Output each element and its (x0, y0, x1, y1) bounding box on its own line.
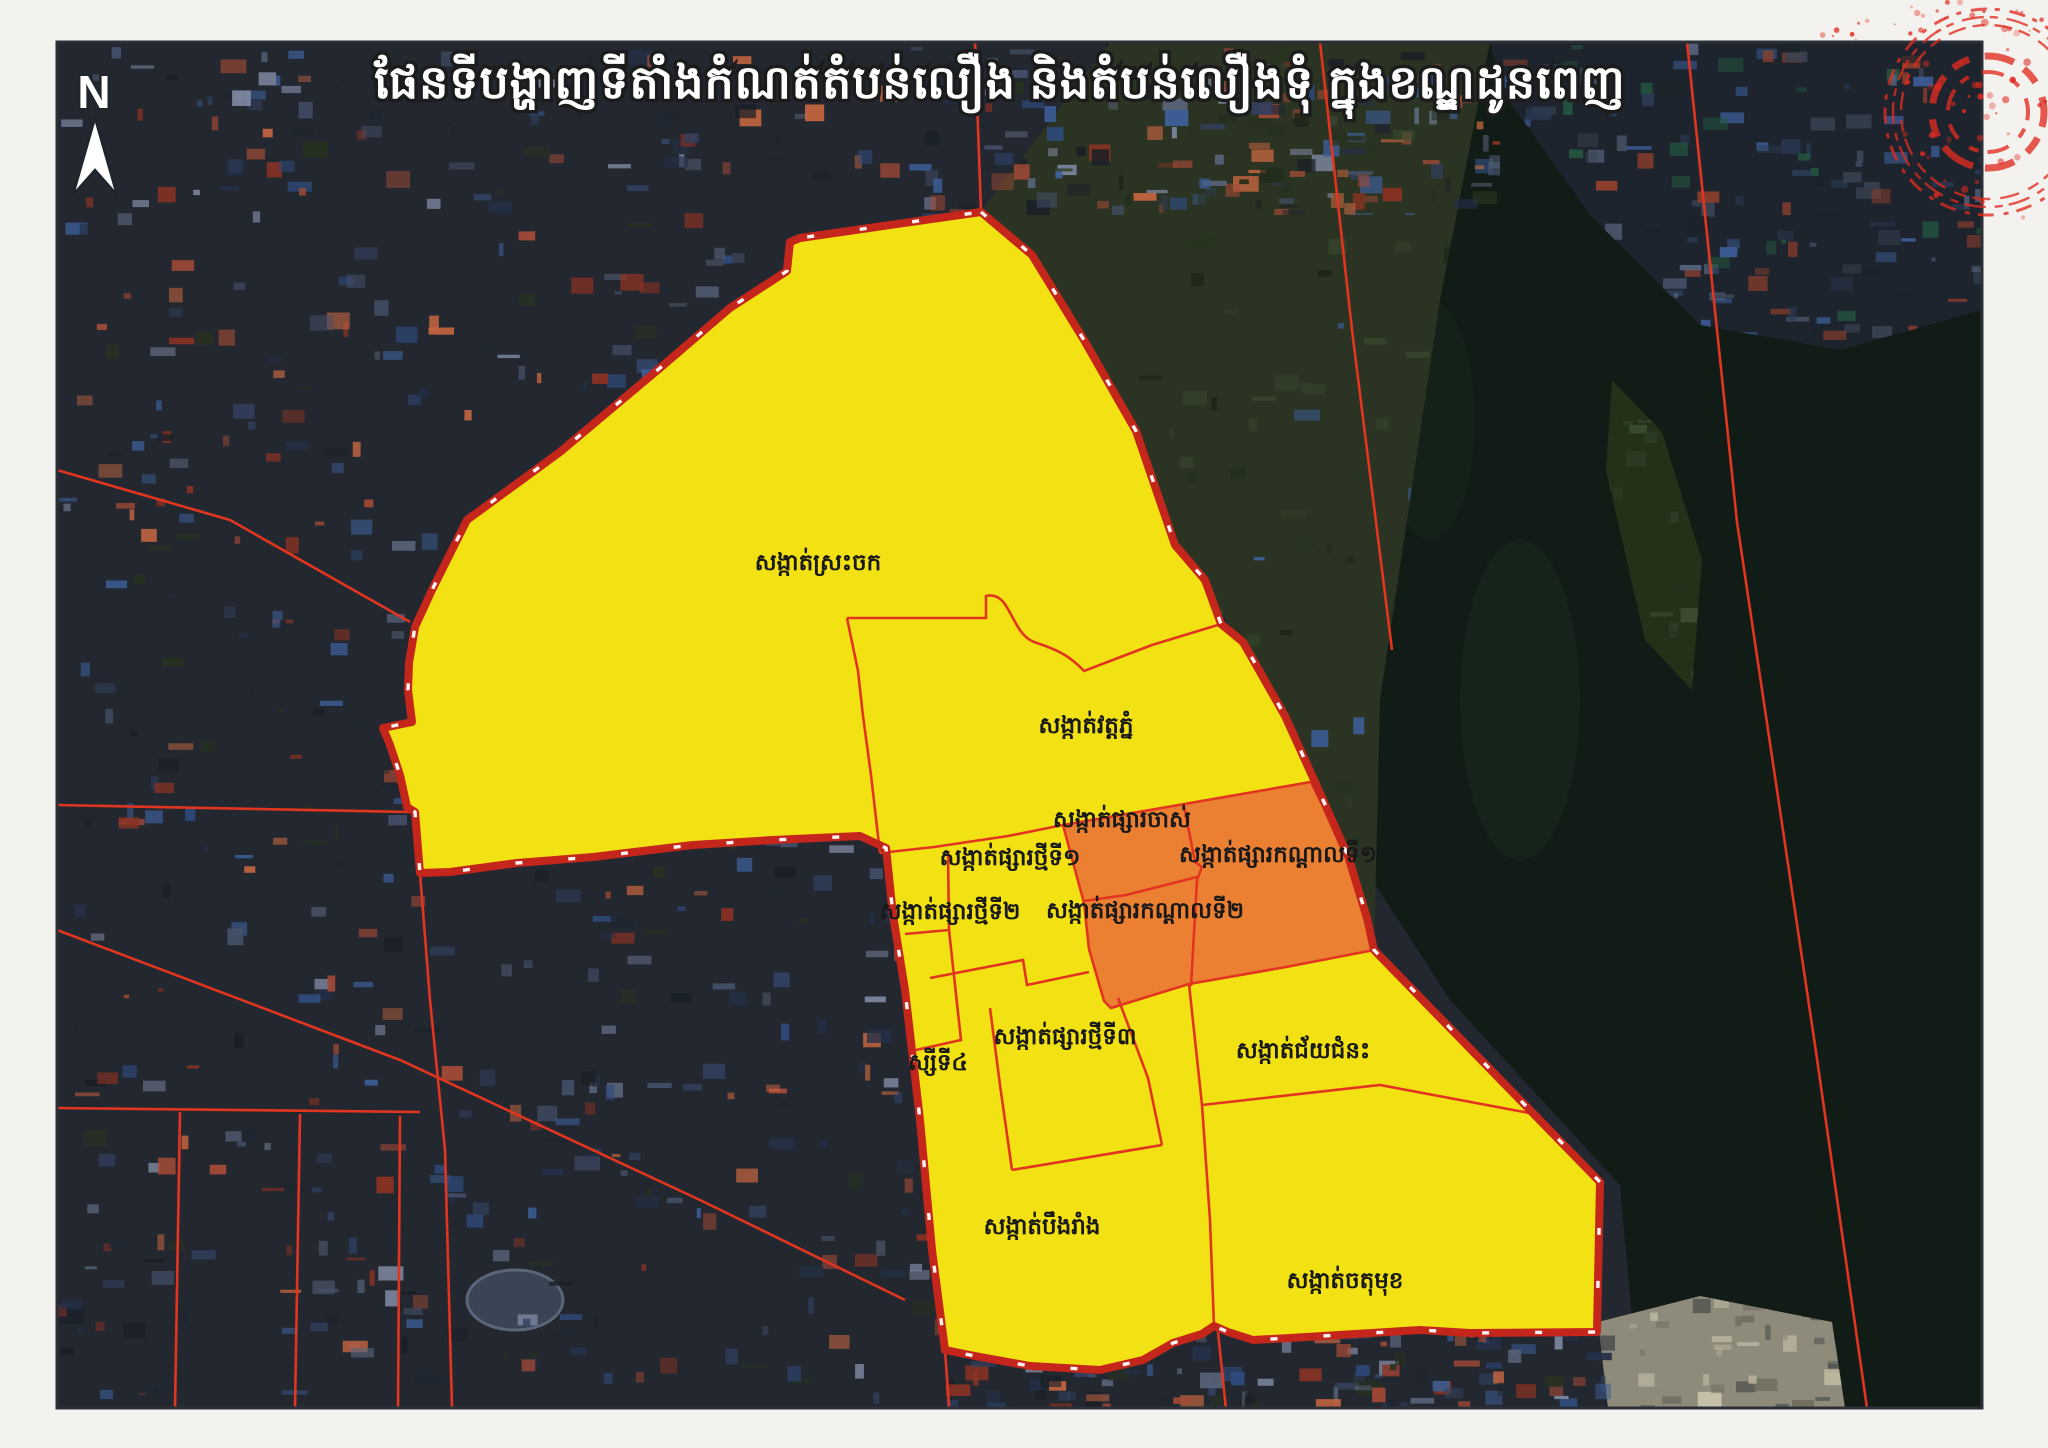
north-label: N (77, 66, 110, 118)
water-shallow (1460, 540, 1580, 860)
sangkat-label: សង្កាត់ផ្សារថ្មីទី៣ (994, 1021, 1137, 1051)
sangkat-label: សង្កាត់ផ្សារថ្មីទី២ (880, 896, 1021, 926)
sangkat-label: សង្កាត់បឹងរាំង (984, 1211, 1101, 1241)
sangkat-label: សង្កាត់ស្រះចក (755, 547, 881, 577)
satellite-map-canvas: សង្កាត់ស្រះចកសង្កាត់វត្តភ្នំសង្កាត់ផ្សារ… (0, 0, 2048, 1448)
sangkat-label: សង្កាត់វត្តភ្នំ (1039, 710, 1134, 740)
sangkat-label: សង្កាត់ផ្សារកណ្ដាលទី១ (1179, 839, 1377, 869)
stadium-oval (467, 1270, 563, 1330)
sangkat-label: សង្កាត់ផ្សារថ្មីទី១ (940, 842, 1081, 872)
sangkat-label: សង្កាត់ផ្សារចាស់ (1053, 804, 1191, 834)
sangkat-label: សង្កាត់ចតុមុខ (1287, 1265, 1404, 1296)
sangkat-label: សង្កាត់ផ្សារកណ្ដាលទី២ (1046, 895, 1244, 925)
sangkat-label: សង្កាត់ជ័យជំនះ (1236, 1035, 1370, 1065)
sangkat-label: ស្សីទី៤ (908, 1047, 968, 1077)
scanned-map-page: សង្កាត់ស្រះចកសង្កាត់វត្តភ្នំសង្កាត់ផ្សារ… (0, 0, 2048, 1448)
